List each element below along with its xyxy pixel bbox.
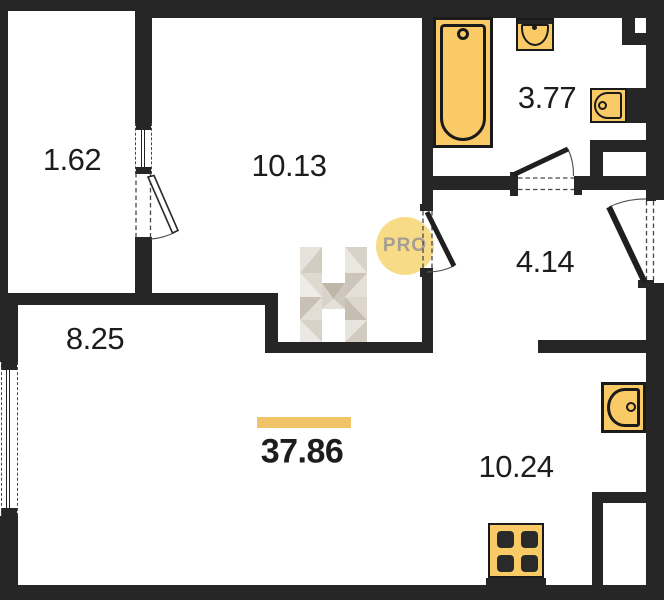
window-sill <box>1 508 17 516</box>
toilet-icon <box>590 88 627 123</box>
kitchen-sink-icon <box>601 382 646 433</box>
wall-kitchen-niche-top <box>592 492 646 503</box>
window-glass <box>141 130 145 167</box>
bathroom-sink-icon <box>516 18 554 51</box>
kitchen-sink-tap <box>626 402 636 412</box>
stove-icon <box>488 523 544 578</box>
wall-horizontal-lower <box>265 342 433 353</box>
wall-niche-top <box>590 140 647 152</box>
area-label-balcony: 1.62 <box>43 142 101 178</box>
area-label-bathroom: 3.77 <box>518 80 576 116</box>
balcony-window <box>135 123 152 174</box>
toilet-flush-button <box>598 101 607 110</box>
wall-shaft-horizontal <box>622 33 647 45</box>
pro-watermark-badge: PRO <box>376 217 434 275</box>
window-sill <box>136 167 151 174</box>
wall-top-main <box>135 0 664 18</box>
total-area-highlight-bar <box>257 417 351 428</box>
window-frame-dash <box>17 362 18 516</box>
wall-bath-south-right <box>578 176 664 190</box>
entrance-door-leaf <box>609 207 645 283</box>
stove-burner <box>497 531 514 548</box>
door-swing-arc <box>568 149 574 176</box>
watermark-h-logo <box>300 247 367 342</box>
pro-watermark-text: PRO <box>383 235 427 257</box>
stove-burner <box>521 555 538 572</box>
window-sill <box>1 362 17 370</box>
floor-plan: PRO <box>0 0 664 600</box>
wall-bottom <box>0 585 664 600</box>
area-label-kitchen: 10.24 <box>478 449 553 485</box>
total-area-label: 37.86 <box>261 433 344 472</box>
door-swing-arc <box>609 199 646 207</box>
bathtub-drain <box>457 28 469 40</box>
area-label-room: 10.13 <box>251 148 326 184</box>
wall-toilet-duct <box>627 88 647 123</box>
stove-burner <box>521 531 538 548</box>
window-frame-dash <box>135 123 136 174</box>
wall-bath-south-left <box>433 176 513 190</box>
bathtub-basin <box>440 24 486 141</box>
area-label-kitchen-left: 8.25 <box>66 321 124 357</box>
bathtub-icon <box>433 17 493 148</box>
area-label-hallway: 4.14 <box>516 244 574 280</box>
window-frame-dash <box>1 362 2 516</box>
wall-niche-left <box>590 152 603 176</box>
bathroom-door-leaf <box>513 149 568 175</box>
wall-right-upper <box>646 18 664 200</box>
wall-room-right-lower <box>422 271 433 353</box>
wall-hall-south <box>538 340 647 353</box>
window-frame-dash <box>151 123 152 174</box>
window-glass <box>6 370 10 508</box>
stove-base <box>486 578 546 586</box>
stove-burner <box>497 555 514 572</box>
wall-bath-door-jamb-left <box>510 172 518 196</box>
wall-kitchen-niche-vertical <box>592 492 603 585</box>
door-swing-arc <box>151 232 176 239</box>
window-sill <box>136 123 151 130</box>
wall-horizontal-upper <box>0 293 278 305</box>
wall-left-lower <box>0 515 18 600</box>
balcony-door-leaf <box>148 176 178 234</box>
living-room-window <box>0 362 19 516</box>
wall-divider-balcony-top <box>135 11 152 124</box>
sink-tap-dot <box>532 25 537 30</box>
wall-right-lower <box>646 283 664 600</box>
wall-balcony-left <box>0 0 8 293</box>
wall-balcony-top <box>0 0 137 11</box>
wall-room-right-upper <box>422 18 433 210</box>
